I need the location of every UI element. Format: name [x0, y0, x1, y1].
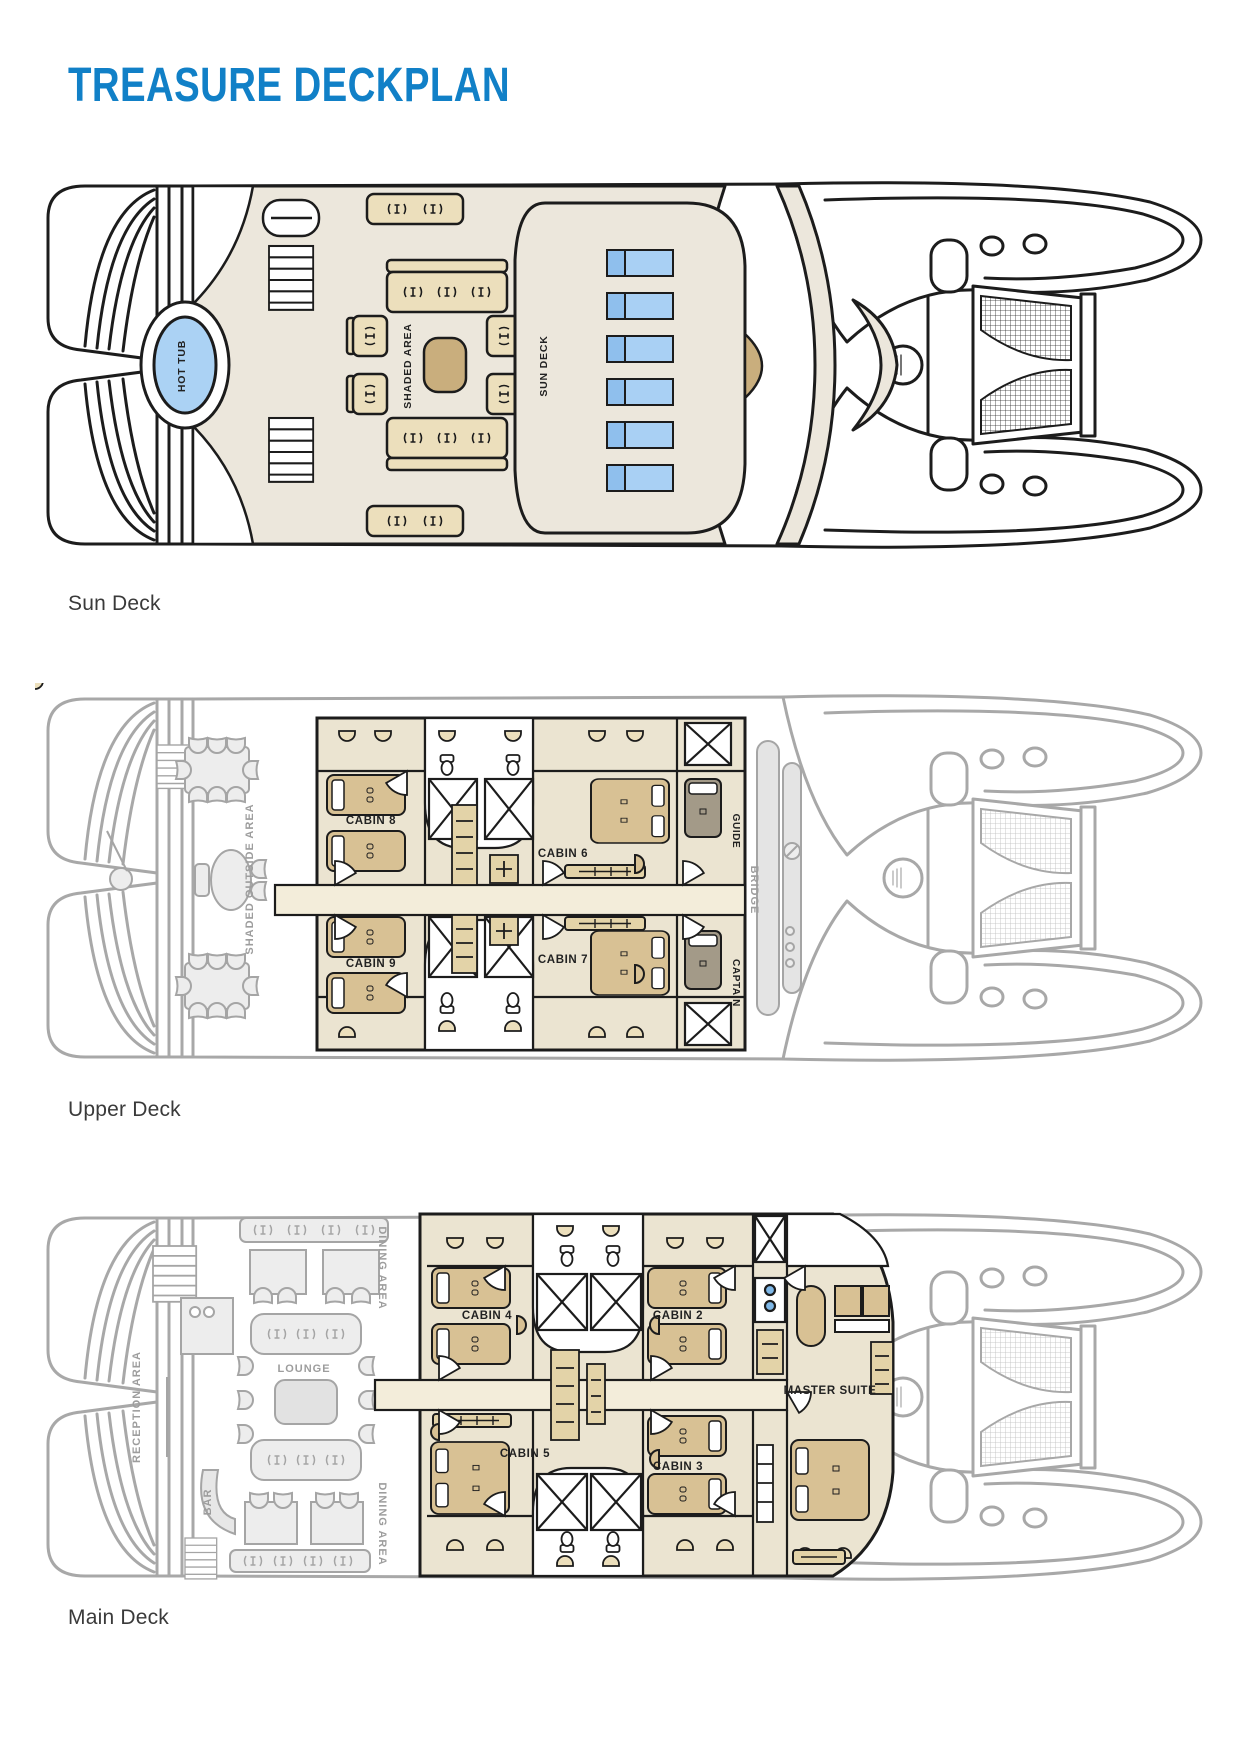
- reception-area-label: RECEPTION AREA: [131, 1351, 143, 1463]
- cabin5-label: CABIN 5: [500, 1448, 550, 1460]
- cabin6-label: CABIN 6: [538, 848, 588, 860]
- cabin4-label: CABIN 4: [462, 1310, 512, 1322]
- sun-deck-caption: Sun Deck: [68, 592, 161, 616]
- corridor: [275, 885, 745, 915]
- sun-deck-label: SUN DECK: [538, 335, 550, 396]
- upper-deck-plan: SHADED OUTSIDE AREA: [35, 683, 1205, 1073]
- hot-tub-label: HOT TUB: [176, 340, 188, 392]
- bridge-label: BRIDGE: [748, 866, 760, 915]
- main-deck-plan: RECEPTION AREA DINING AREA LOUNGE BAR DI…: [35, 1202, 1205, 1592]
- main-deck-caption: Main Deck: [68, 1606, 169, 1630]
- page-title: TREASURE DECKPLAN: [68, 58, 510, 113]
- shaded-area-label: SHADED AREA: [402, 323, 414, 408]
- corridor: [375, 1380, 787, 1410]
- cabin8-label: CABIN 8: [346, 815, 396, 827]
- cabin2-label: CABIN 2: [653, 1310, 703, 1322]
- cabin3-label: CABIN 3: [653, 1461, 703, 1473]
- bar-label: BAR: [202, 1489, 214, 1516]
- captain-label: CAPTAIN: [730, 959, 741, 1007]
- shaded-outside-area-label: SHADED OUTSIDE AREA: [244, 803, 256, 954]
- guide-label: GUIDE: [730, 814, 741, 849]
- upper-deck-caption: Upper Deck: [68, 1098, 181, 1122]
- cabin9-label: CABIN 9: [346, 958, 396, 970]
- dining-area-top-label: DINING AREA: [376, 1226, 388, 1309]
- cabin7-label: CABIN 7: [538, 954, 588, 966]
- roof-hatch: [263, 200, 319, 236]
- lounge-label: LOUNGE: [277, 1363, 330, 1375]
- dining-area-bottom-label: DINING AREA: [376, 1482, 388, 1565]
- bridge-console: [757, 741, 801, 1015]
- master-suite-label: MASTER SUITE: [784, 1385, 877, 1397]
- sun-deck-plan: HOT TUB SHADED AREA: [35, 170, 1205, 560]
